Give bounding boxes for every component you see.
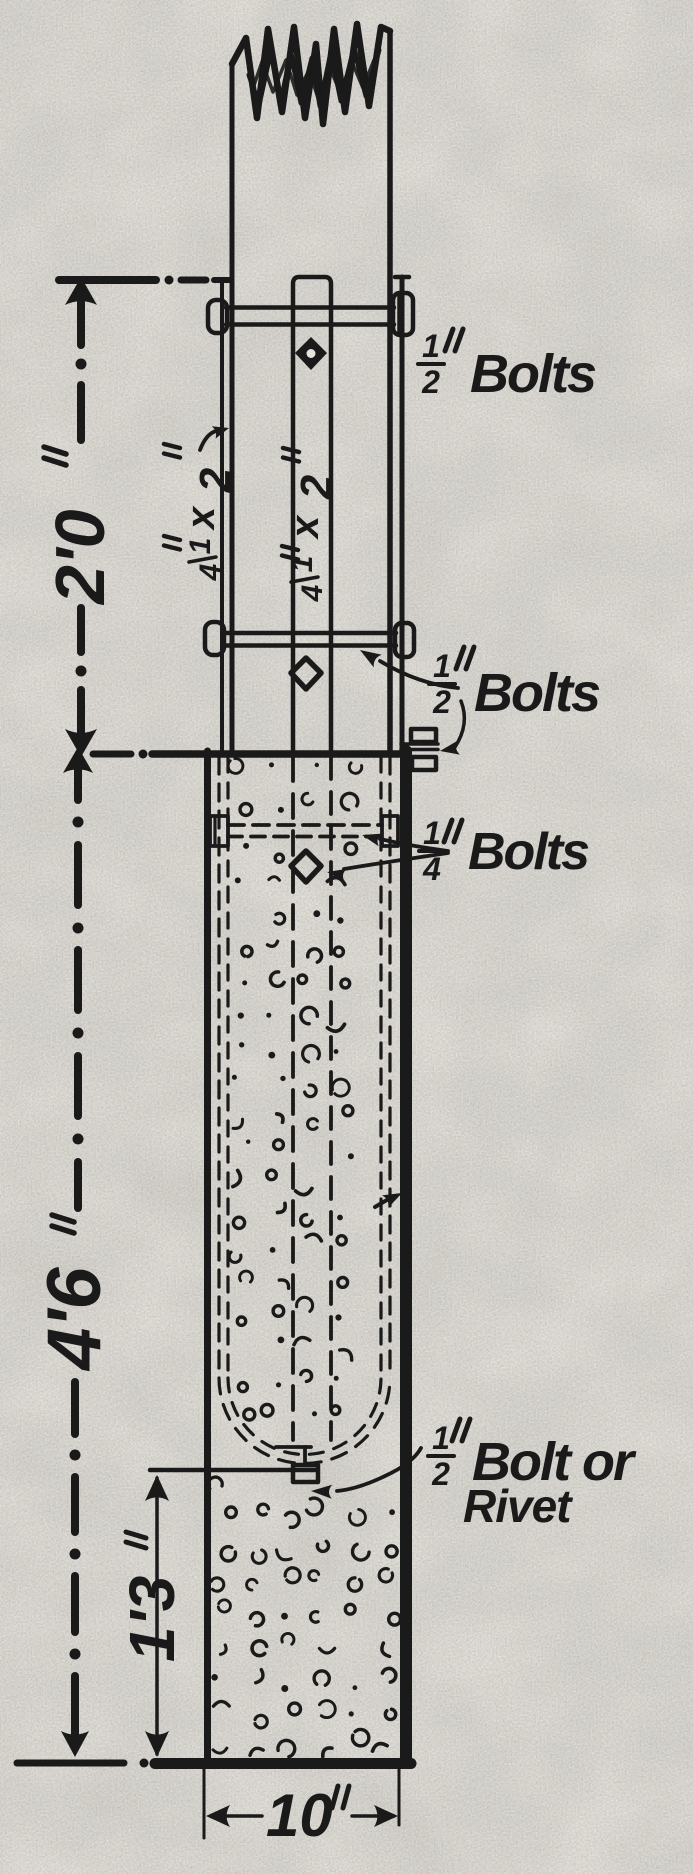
svg-text:10: 10 (266, 1782, 333, 1849)
svg-text:2: 2 (431, 1456, 450, 1492)
svg-text:x: x (283, 514, 327, 540)
svg-text:Bolts: Bolts (470, 344, 596, 404)
svg-text:2: 2 (421, 364, 440, 400)
svg-text:Rivet: Rivet (463, 1480, 573, 1532)
svg-text:Bolts: Bolts (474, 663, 600, 723)
svg-text:Bolts: Bolts (468, 823, 589, 881)
svg-text:2: 2 (432, 684, 451, 720)
svg-text:4'6: 4'6 (32, 1267, 117, 1372)
svg-text:1'3: 1'3 (116, 1576, 188, 1662)
svg-text:2'0: 2'0 (41, 509, 119, 606)
svg-text:1: 1 (432, 1420, 450, 1456)
svg-text:2: 2 (191, 467, 240, 493)
svg-text:1: 1 (433, 648, 451, 684)
svg-text:4: 4 (194, 563, 227, 581)
svg-text:2: 2 (292, 474, 341, 500)
svg-text:1: 1 (423, 815, 441, 851)
svg-text:4: 4 (296, 584, 329, 602)
svg-text:1: 1 (184, 538, 217, 555)
svg-text:x: x (179, 505, 223, 531)
svg-text:1: 1 (422, 328, 440, 364)
